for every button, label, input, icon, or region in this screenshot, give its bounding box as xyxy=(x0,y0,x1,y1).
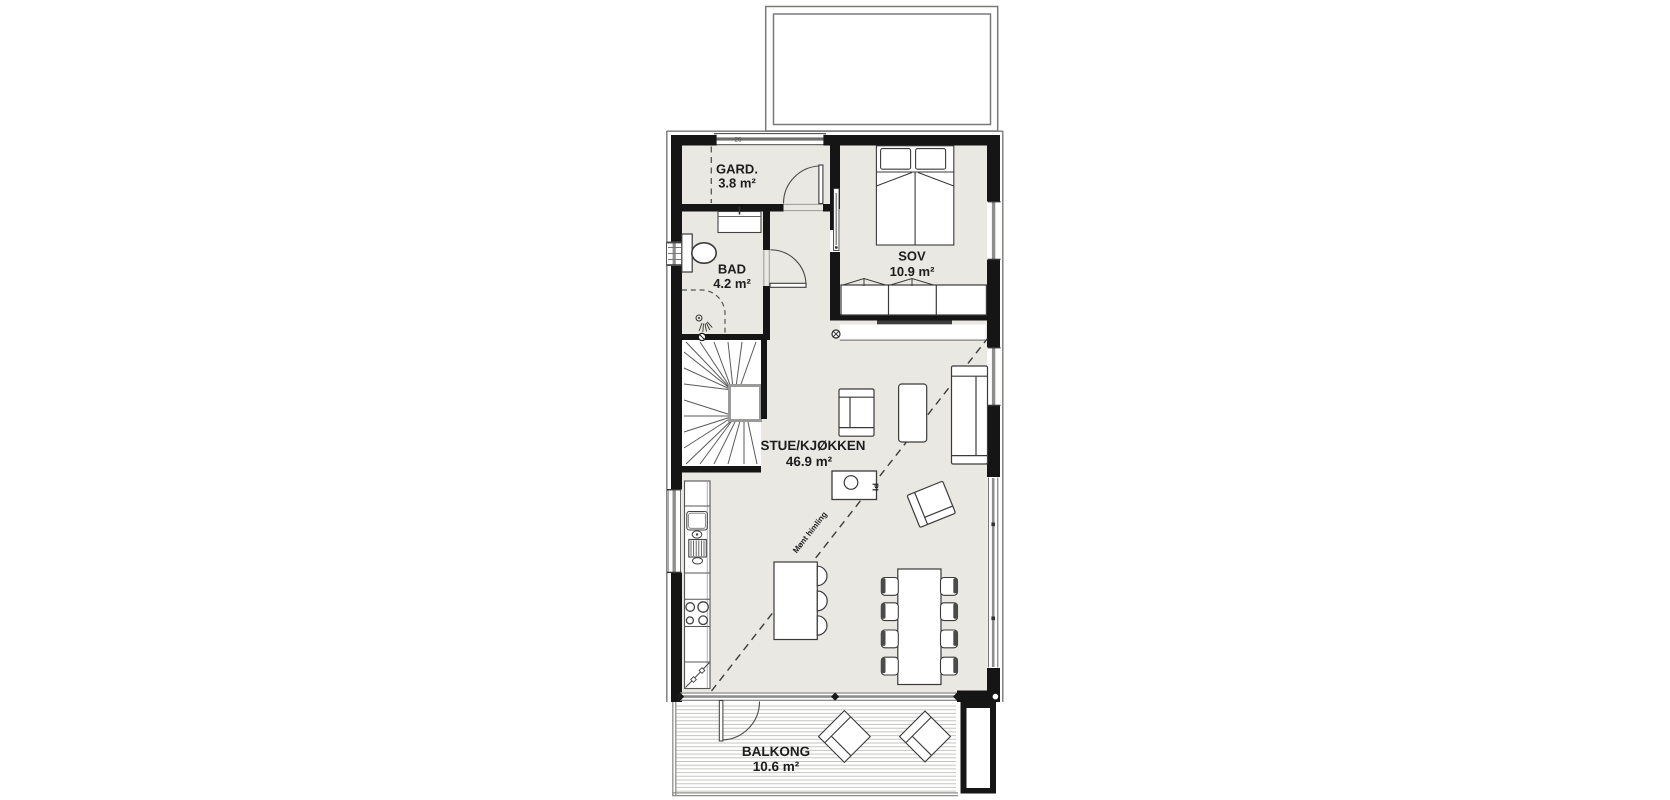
svg-text:STUE/KJØKKEN: STUE/KJØKKEN xyxy=(761,438,866,453)
svg-text:BAD: BAD xyxy=(718,262,746,277)
svg-text:4.2 m²: 4.2 m² xyxy=(713,276,751,291)
svg-text:PI: PI xyxy=(871,483,881,491)
svg-text:46.9 m²: 46.9 m² xyxy=(786,454,833,469)
svg-text:BALKONG: BALKONG xyxy=(742,744,810,759)
svg-text:3.8 m²: 3.8 m² xyxy=(718,176,756,191)
svg-text:GARD.: GARD. xyxy=(716,162,758,177)
svg-text:10.9 m²: 10.9 m² xyxy=(890,264,935,279)
svg-text:20: 20 xyxy=(734,137,742,144)
svg-text:10.6 m²: 10.6 m² xyxy=(753,759,800,774)
svg-text:SOV: SOV xyxy=(898,249,926,264)
